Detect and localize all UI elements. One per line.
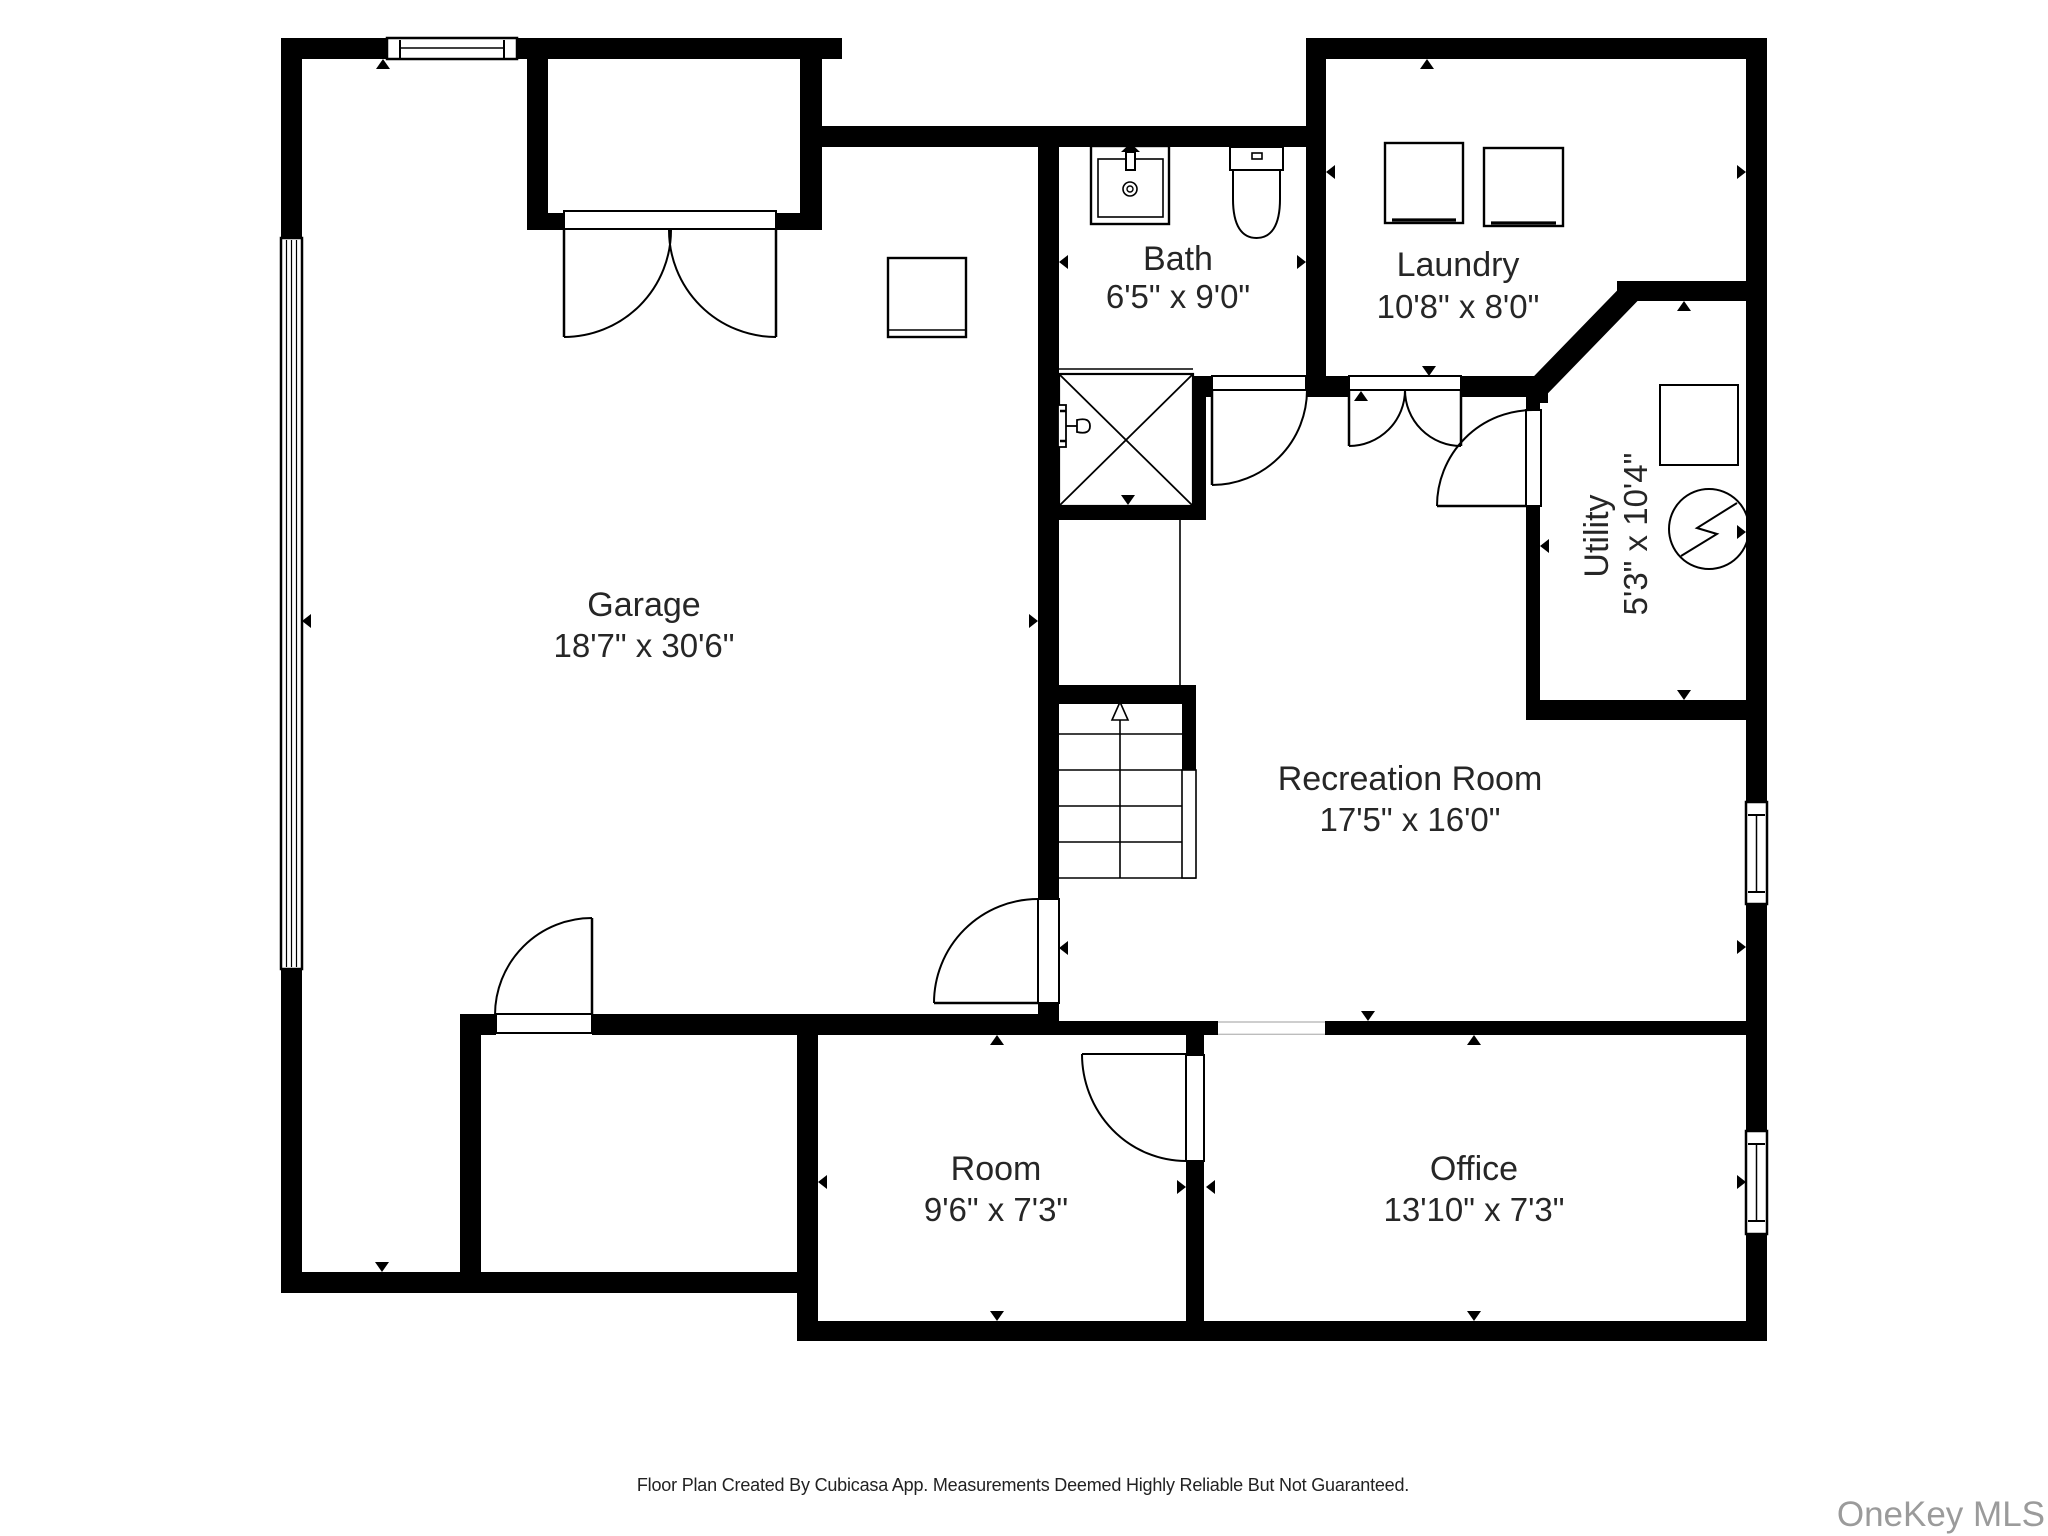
svg-text:Garage: Garage: [587, 586, 700, 624]
svg-text:10'8" x 8'0": 10'8" x 8'0": [1377, 288, 1540, 325]
svg-text:18'7" x 30'6": 18'7" x 30'6": [554, 627, 735, 664]
svg-text:Bath: Bath: [1143, 240, 1213, 278]
svg-text:13'10" x 7'3": 13'10" x 7'3": [1384, 1191, 1565, 1228]
svg-text:5'3" x 10'4": 5'3" x 10'4": [1617, 453, 1654, 616]
svg-text:Laundry: Laundry: [1397, 246, 1520, 284]
svg-text:9'6" x 7'3": 9'6" x 7'3": [924, 1191, 1068, 1228]
svg-text:OneKey MLS: OneKey MLS: [1837, 1495, 2045, 1534]
svg-text:Recreation Room: Recreation Room: [1278, 760, 1543, 798]
svg-text:Utility: Utility: [1578, 494, 1616, 577]
svg-text:6'5" x 9'0": 6'5" x 9'0": [1106, 278, 1250, 315]
svg-text:Room: Room: [951, 1150, 1042, 1188]
svg-text:Office: Office: [1430, 1150, 1518, 1188]
svg-text:Floor Plan Created By Cubicasa: Floor Plan Created By Cubicasa App. Meas…: [637, 1475, 1409, 1495]
svg-text:17'5" x 16'0": 17'5" x 16'0": [1320, 801, 1501, 838]
